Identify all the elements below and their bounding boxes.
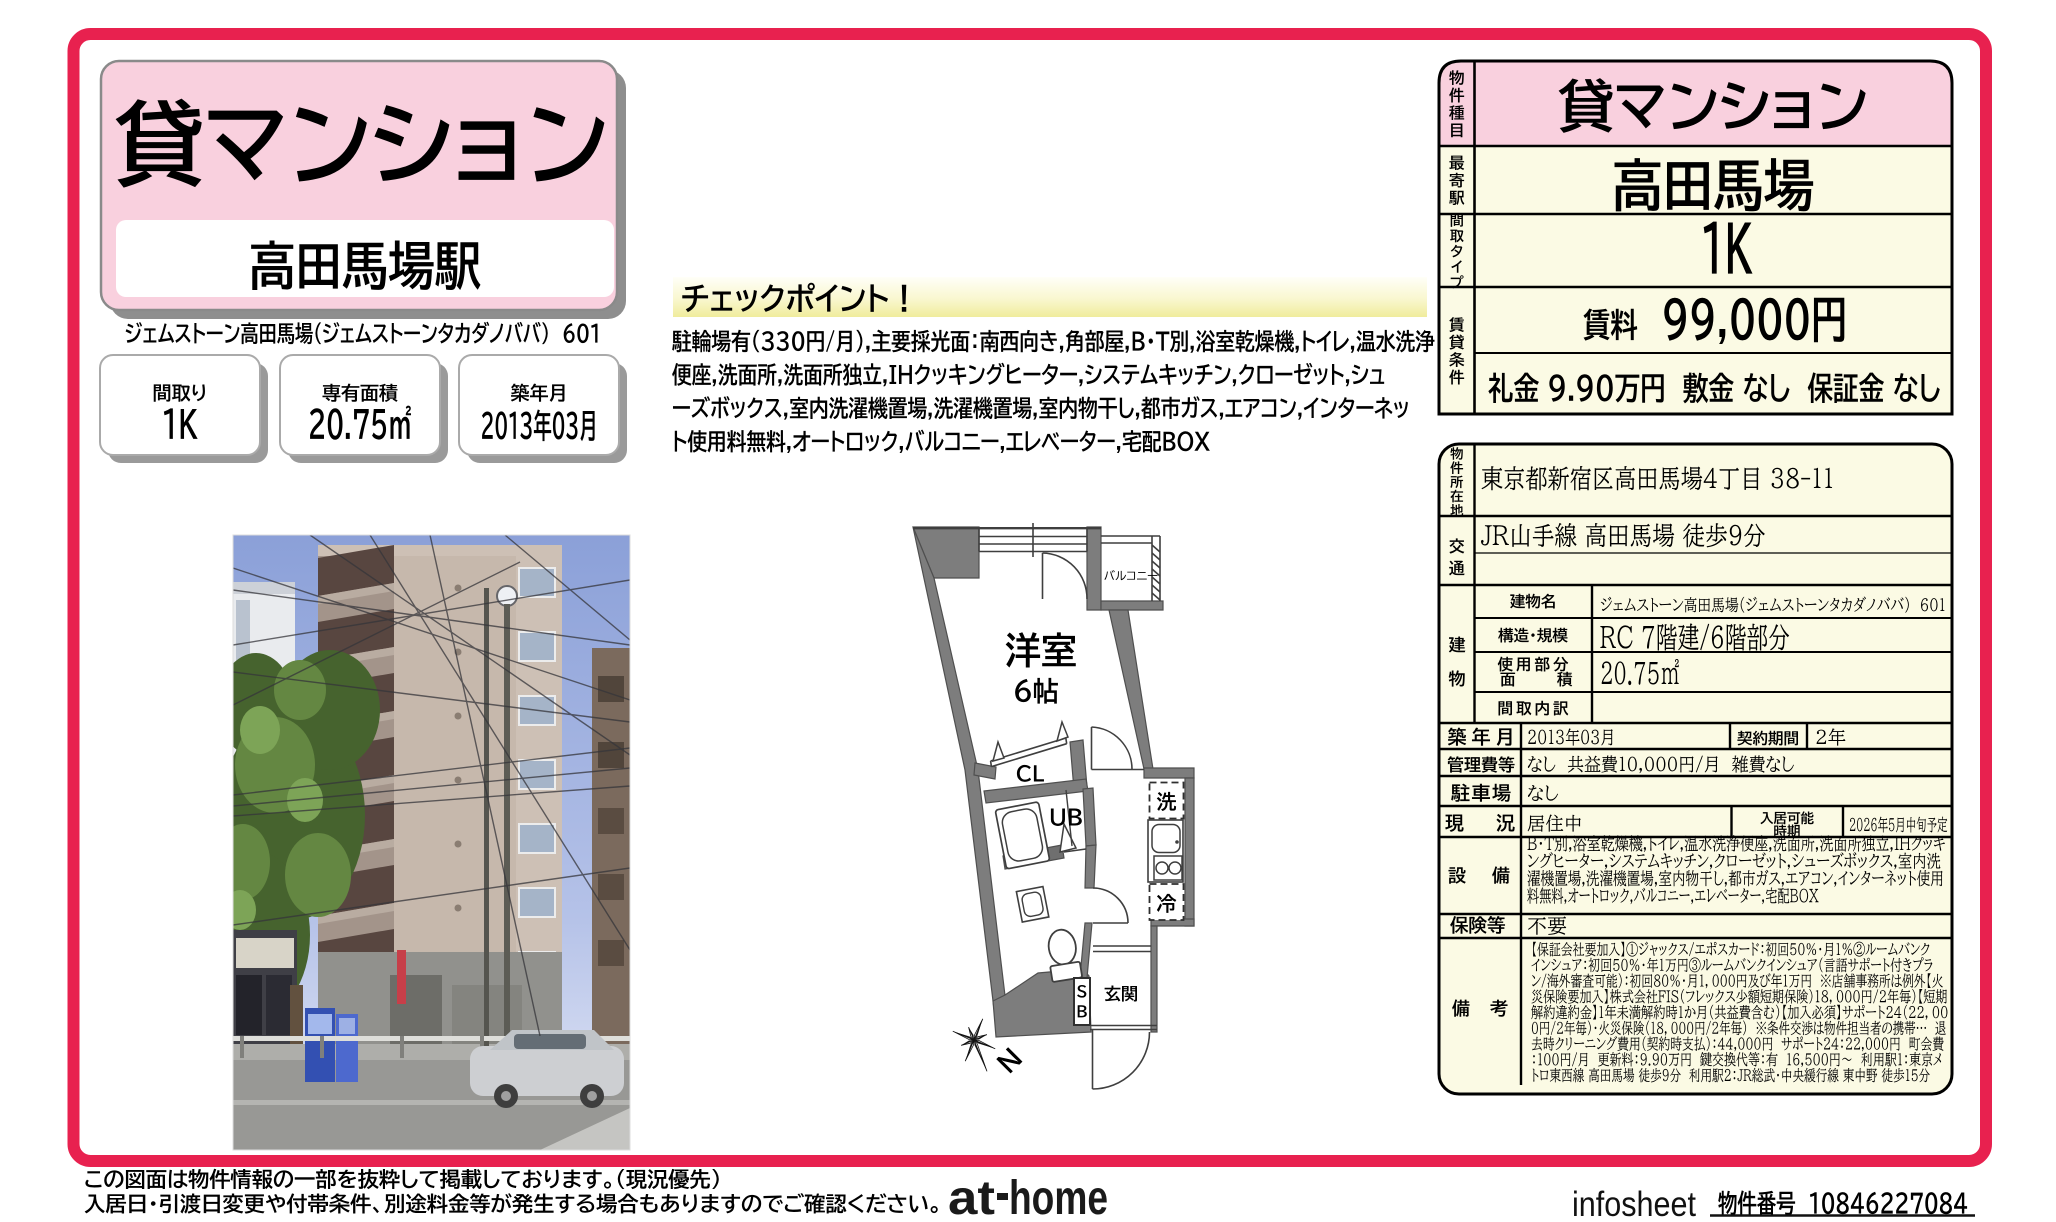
svg-text:home: home (1009, 1172, 1108, 1222)
svg-text:at: at (948, 1172, 995, 1222)
svg-text:infosheet: infosheet (1572, 1185, 1696, 1222)
